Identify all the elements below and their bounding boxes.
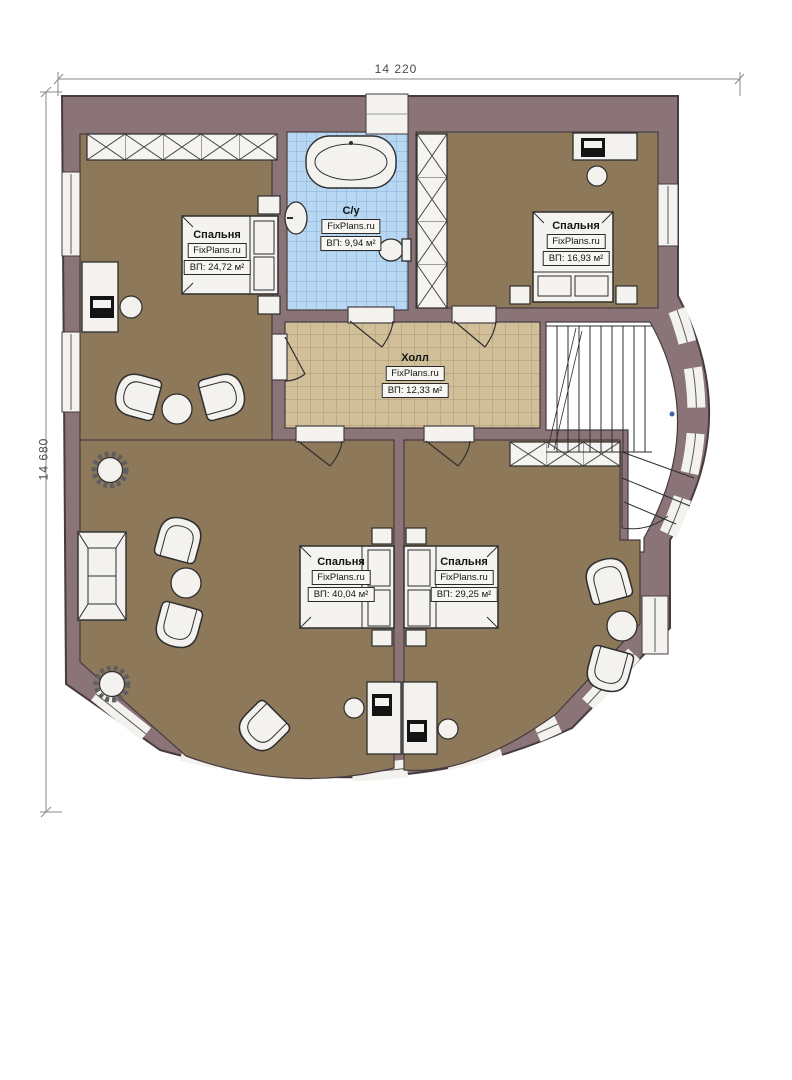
door-opening-bedroom-top-right [452,306,496,323]
wardrobe-top-right [417,134,447,308]
monitor-screen [584,141,602,148]
room-area: ВП: 24,72 м² [184,260,251,275]
nightstand [510,286,530,304]
room-name: Спальня [552,220,600,232]
nightstand [406,630,426,646]
desk-bottom-left [367,682,401,754]
nightstand [616,286,637,304]
floor-plan-page: 14 220 14 680 Спальня FixPlans.ru ВП: 24… [0,0,792,1080]
room-label-bedroom-bottom-right: Спальня FixPlans.ru ВП: 29,25 м² [431,556,498,602]
nightstand [258,296,280,314]
desk-chair [438,719,458,739]
monitor-screen [93,300,111,308]
round-table [171,568,201,598]
room-name: Холл [401,352,429,364]
watermark: FixPlans.ru [311,570,371,585]
door-opening-hall-west [272,334,287,380]
desk-chair [344,698,364,718]
room-name: С/у [342,205,359,217]
dimension-height: 14 680 [36,438,50,481]
room-area: ВП: 16,93 м² [543,251,610,266]
monitor-screen [375,698,389,706]
floor-plan-drawing [0,0,792,1080]
room-label-bathroom: С/у FixPlans.ru ВП: 9,94 м² [320,205,381,251]
desk-chair [120,296,142,318]
wardrobe-bottom-right [510,442,620,466]
toilet-tank [402,239,411,261]
room-label-bedroom-top-left: Спальня FixPlans.ru ВП: 24,72 м² [184,229,251,275]
fireplace [78,532,126,620]
nightstand [372,528,392,544]
pillow [254,221,274,254]
room-area: ВП: 12,33 м² [382,383,449,398]
pillow [538,276,571,296]
pillow [575,276,608,296]
room-label-bedroom-top-right: Спальня FixPlans.ru ВП: 16,93 м² [543,220,610,266]
monitor-screen [410,724,424,732]
round-table [607,611,637,641]
room-name: Спальня [440,556,488,568]
watermark: FixPlans.ru [321,219,381,234]
room-label-bedroom-bottom-left: Спальня FixPlans.ru ВП: 40,04 м² [308,556,375,602]
desk-chair [587,166,607,186]
round-table [162,394,192,424]
room-area: ВП: 29,25 м² [431,587,498,602]
door-opening-bedroom-bottom-left [296,426,344,442]
desk-bottom-right [403,682,437,754]
watermark: FixPlans.ru [434,570,494,585]
room-area: ВП: 9,94 м² [320,236,381,251]
pillow [408,590,430,626]
watermark: FixPlans.ru [187,243,247,258]
watermark: FixPlans.ru [546,234,606,249]
door-opening-bedroom-bottom-right [424,426,474,442]
pillow [408,550,430,586]
room-area: ВП: 40,04 м² [308,587,375,602]
room-name: Спальня [193,229,241,241]
stair-pivot-dot [670,412,675,417]
nightstand [406,528,426,544]
wardrobe-top-left [87,134,277,160]
watermark: FixPlans.ru [385,366,445,381]
door-opening-bathroom [348,307,394,323]
toilet [379,239,403,261]
room-name: Спальня [317,556,365,568]
nightstand [258,196,280,214]
room-label-hall: Холл FixPlans.ru ВП: 12,33 м² [382,352,449,398]
bathtub-drain [349,141,353,145]
dimension-width: 14 220 [375,62,418,76]
nightstand [372,630,392,646]
pillow [254,257,274,290]
